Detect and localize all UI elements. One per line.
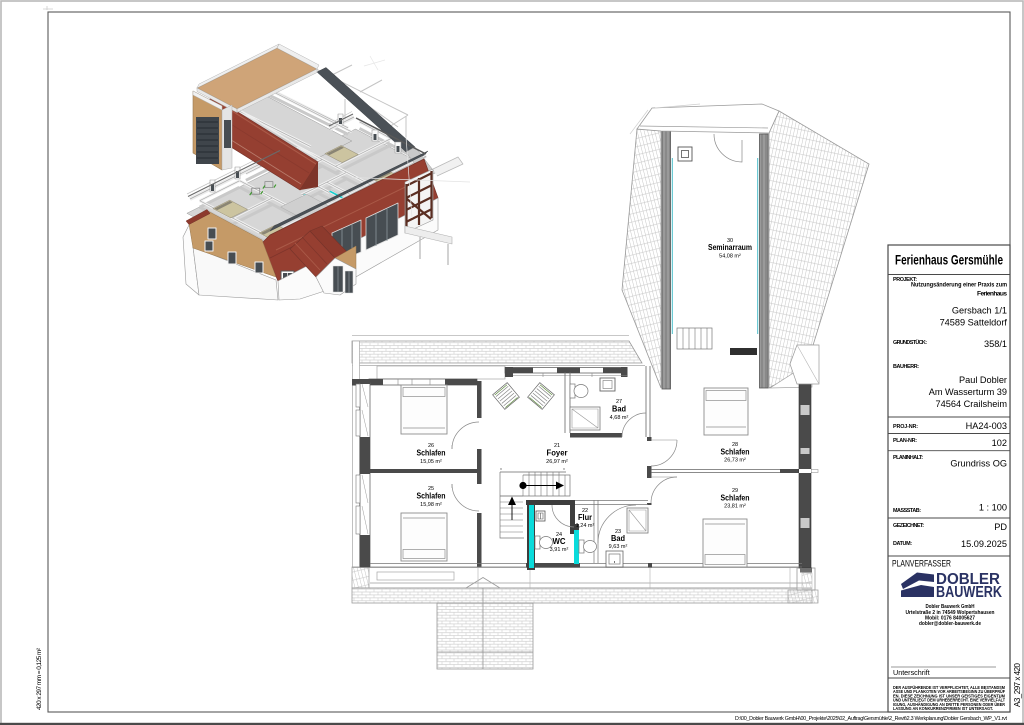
svg-text:PLAN-NR:: PLAN-NR:: [893, 438, 917, 444]
svg-text:x: x: [563, 466, 565, 471]
svg-text:x: x: [500, 466, 502, 471]
svg-text:26,97 m²: 26,97 m²: [546, 459, 568, 465]
svg-text:15.09.2025: 15.09.2025: [961, 539, 1007, 549]
svg-text:1,24 m²: 1,24 m²: [576, 523, 595, 529]
svg-text:Am Wasserturm 39: Am Wasserturm 39: [929, 387, 1007, 397]
svg-text:WC: WC: [553, 537, 566, 546]
svg-text:PROJ-NR:: PROJ-NR:: [893, 424, 918, 430]
svg-text:GRUNDSTÜCK:: GRUNDSTÜCK:: [893, 339, 927, 346]
svg-text:Grundriss OG: Grundriss OG: [950, 459, 1007, 469]
svg-text:LASSUNG AN KONKURRENZFIRMEN IS: LASSUNG AN KONKURRENZFIRMEN IST UNTERSAG…: [893, 706, 993, 711]
svg-text:Schlafen: Schlafen: [417, 449, 446, 458]
svg-text:dobler@dobler-bauwerk.de: dobler@dobler-bauwerk.de: [919, 621, 981, 627]
svg-text:Bad: Bad: [611, 534, 625, 543]
svg-text:Schlafen: Schlafen: [721, 494, 750, 503]
svg-text:PD: PD: [994, 522, 1007, 532]
svg-text:15,05 m²: 15,05 m²: [420, 459, 442, 465]
svg-text:9,63 m²: 9,63 m²: [609, 544, 628, 550]
svg-text:358/1: 358/1: [984, 339, 1007, 349]
svg-text:74589 Satteldorf: 74589 Satteldorf: [940, 318, 1008, 328]
svg-text:54,08 m²: 54,08 m²: [719, 254, 741, 260]
svg-text:4,68 m²: 4,68 m²: [610, 415, 629, 421]
svg-text:Flur: Flur: [578, 513, 592, 522]
svg-text:23,81 m²: 23,81 m²: [724, 504, 746, 510]
svg-text:MASSSTAB:: MASSSTAB:: [893, 508, 921, 514]
svg-text:Ferienhaus Gersmühle: Ferienhaus Gersmühle: [895, 253, 1003, 268]
svg-text:BAUHERR:: BAUHERR:: [893, 364, 919, 370]
svg-text:Schlafen: Schlafen: [417, 492, 446, 501]
svg-text:Unterschrift: Unterschrift: [893, 668, 930, 677]
svg-text:Bad: Bad: [612, 405, 626, 414]
svg-text:1 : 100: 1 : 100: [979, 503, 1007, 513]
svg-text:Gersbach 1/1: Gersbach 1/1: [952, 306, 1007, 316]
svg-text:A3_297 x 420: A3_297 x 420: [1013, 662, 1022, 707]
svg-text:26,73 m²: 26,73 m²: [724, 458, 746, 464]
svg-text:DATUM:: DATUM:: [893, 541, 912, 547]
svg-text:420 x 297 mm = 0,125 m²: 420 x 297 mm = 0,125 m²: [36, 647, 43, 710]
svg-text:PLANVERFASSER: PLANVERFASSER: [892, 559, 951, 569]
svg-text:15,98 m²: 15,98 m²: [420, 502, 442, 508]
svg-text:Schlafen: Schlafen: [721, 448, 750, 457]
svg-text:Paul Dobler: Paul Dobler: [959, 375, 1007, 385]
svg-text:HA24-003: HA24-003: [966, 421, 1007, 431]
svg-text:BAUWERK: BAUWERK: [936, 584, 1003, 601]
svg-text:102: 102: [992, 438, 1007, 448]
svg-text:Ferienhaus: Ferienhaus: [977, 291, 1007, 298]
svg-text:GEZEICHNET:: GEZEICHNET:: [893, 523, 924, 529]
svg-text:PLANINHALT:: PLANINHALT:: [893, 455, 923, 461]
svg-text:Foyer: Foyer: [547, 449, 568, 458]
svg-text:74564 Crailsheim: 74564 Crailsheim: [936, 399, 1008, 409]
svg-text:3,91 m²: 3,91 m²: [550, 547, 569, 553]
svg-text:Nutzungsänderung einer Praxis: Nutzungsänderung einer Praxis zum: [911, 282, 1007, 289]
svg-text:D:\00_Dobler Bauwerk GmbH\00_P: D:\00_Dobler Bauwerk GmbH\00_Projekte\20…: [735, 716, 1008, 722]
svg-text:Seminarraum: Seminarraum: [708, 243, 752, 252]
